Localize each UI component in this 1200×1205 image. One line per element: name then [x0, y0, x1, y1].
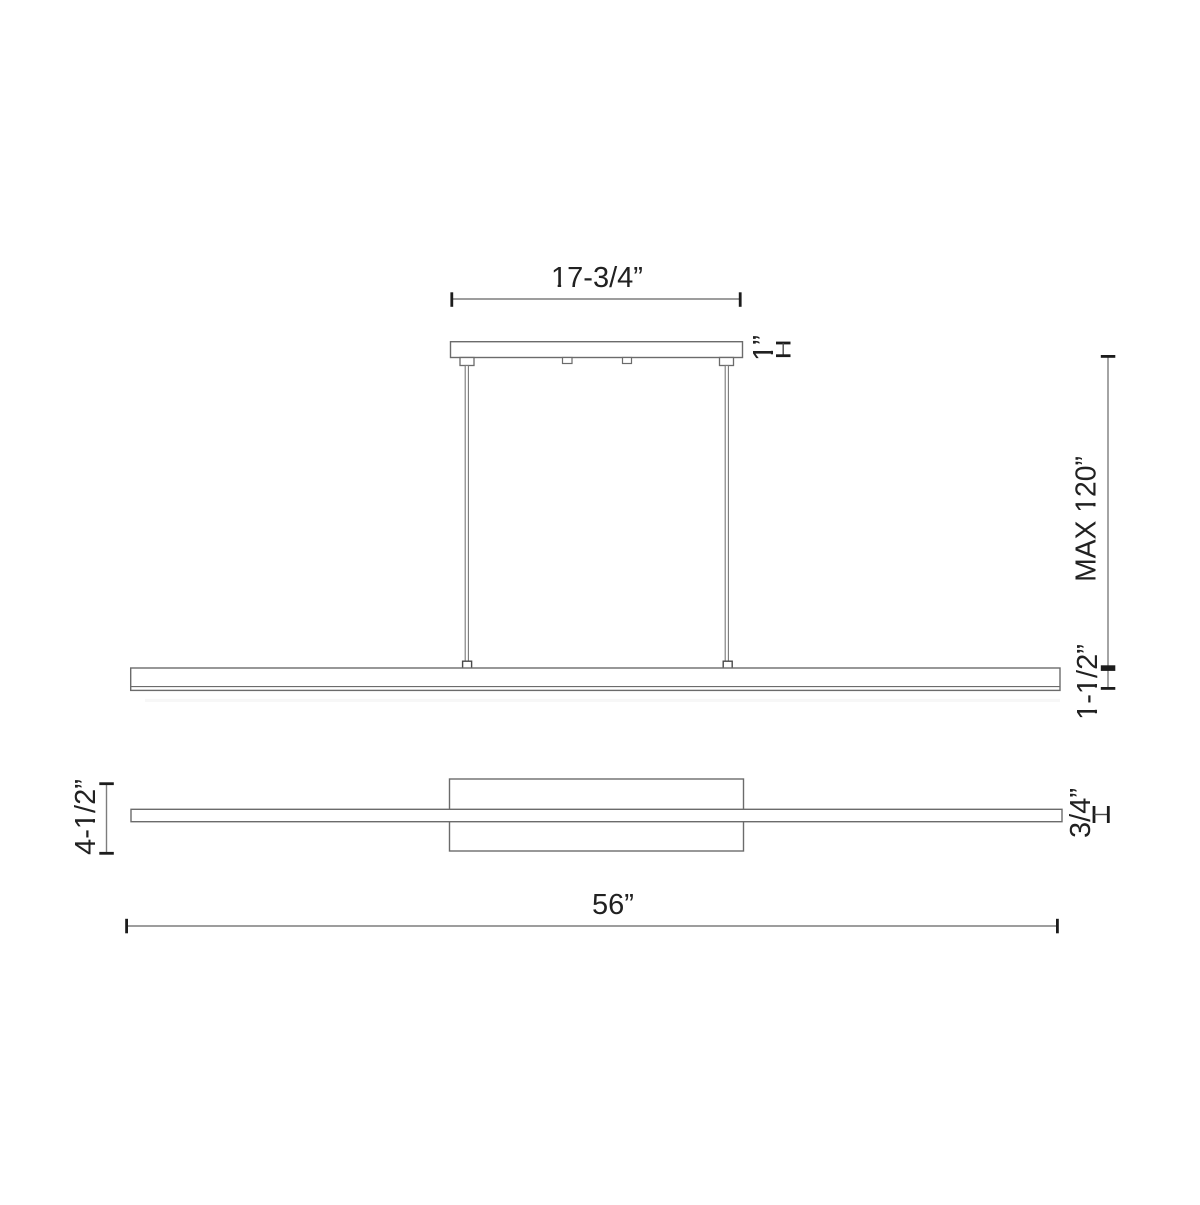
svg-text:17-3/4”: 17-3/4” [551, 262, 643, 294]
svg-text:56”: 56” [592, 889, 634, 921]
svg-text:4-1/2”: 4-1/2” [70, 779, 102, 855]
svg-text:1-1/2”: 1-1/2” [1072, 644, 1104, 720]
svg-text:3/4”: 3/4” [1065, 788, 1097, 838]
svg-text:MAX 120”: MAX 120” [1070, 456, 1102, 582]
svg-text:1”: 1” [748, 335, 780, 361]
